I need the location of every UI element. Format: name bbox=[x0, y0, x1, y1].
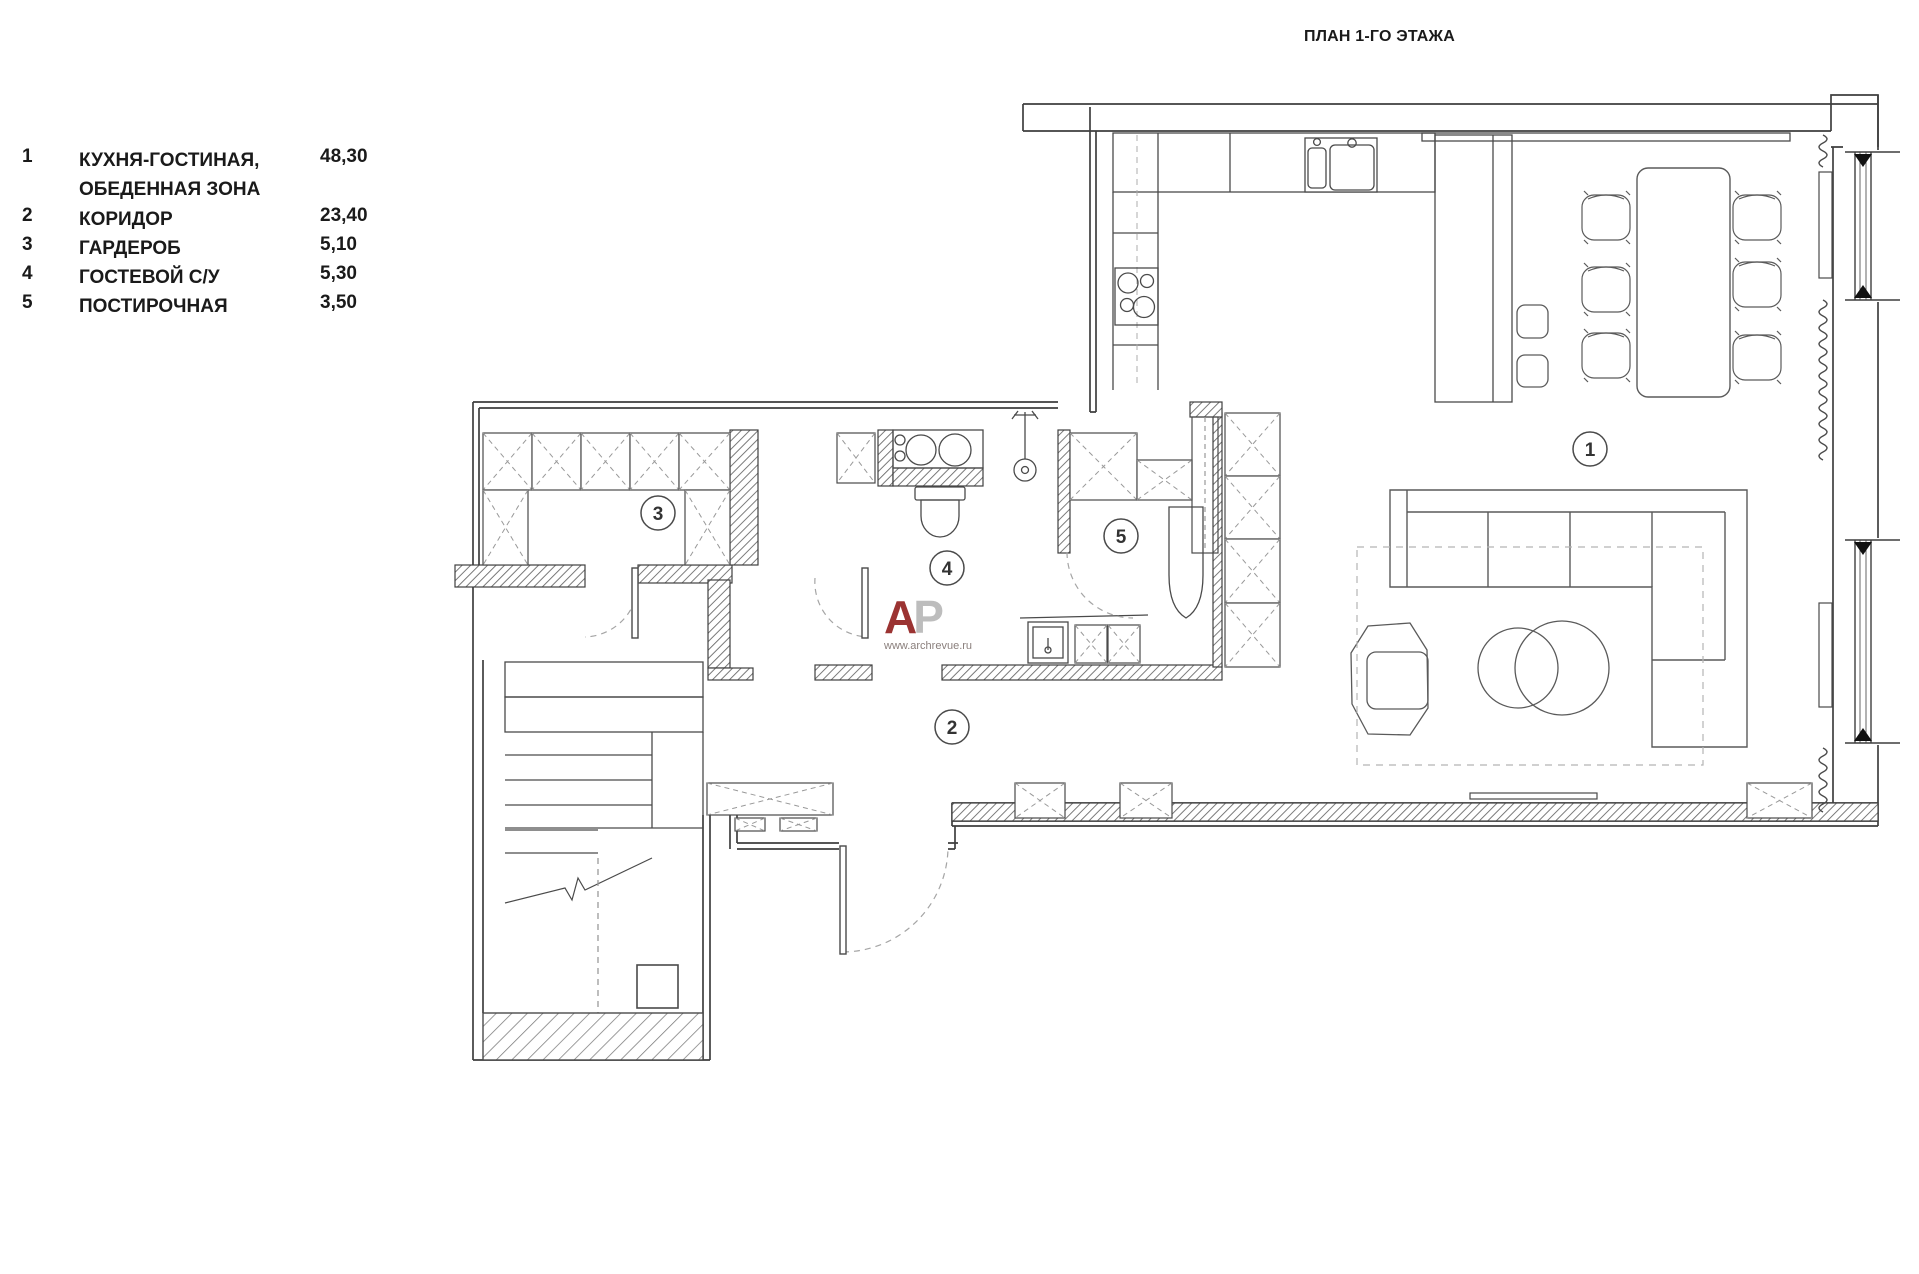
kitchen-counters bbox=[1113, 133, 1790, 402]
shower bbox=[1012, 411, 1038, 481]
bathroom-vanity bbox=[893, 430, 983, 468]
watermark-logo: AP bbox=[884, 594, 994, 640]
room-marker-4: 4 bbox=[930, 551, 964, 585]
room-marker-5: 5 bbox=[1104, 519, 1138, 553]
watermark: AP www.archrevue.ru bbox=[884, 594, 994, 652]
room-marker-number: 5 bbox=[1116, 527, 1127, 548]
door-swings bbox=[585, 552, 1133, 952]
door-leaves bbox=[632, 568, 868, 954]
sofa bbox=[1390, 490, 1747, 747]
bar-stools bbox=[1517, 305, 1548, 387]
dining-chairs bbox=[1582, 191, 1781, 384]
coffee-tables bbox=[1478, 621, 1609, 715]
rug-outline bbox=[1357, 547, 1703, 765]
staircase bbox=[483, 662, 703, 1060]
toilet bbox=[915, 487, 965, 537]
room-marker-number: 2 bbox=[947, 718, 958, 739]
watermark-url: www.archrevue.ru bbox=[884, 640, 994, 652]
kitchen-sink bbox=[1305, 138, 1377, 192]
room-marker-number: 3 bbox=[653, 504, 664, 525]
tv-bench bbox=[1470, 793, 1597, 799]
windows bbox=[1819, 135, 1900, 812]
cabinets bbox=[483, 413, 1812, 831]
watermark-letter-p: P bbox=[913, 591, 940, 643]
room-marker-3: 3 bbox=[641, 496, 675, 530]
watermark-letter-a: A bbox=[884, 591, 913, 643]
room-marker-number: 4 bbox=[942, 559, 953, 580]
armchair bbox=[1351, 623, 1428, 735]
room-marker-number: 1 bbox=[1585, 440, 1596, 461]
dining-table bbox=[1637, 168, 1730, 397]
room-marker-2: 2 bbox=[935, 710, 969, 744]
room-marker-1: 1 bbox=[1573, 432, 1607, 466]
